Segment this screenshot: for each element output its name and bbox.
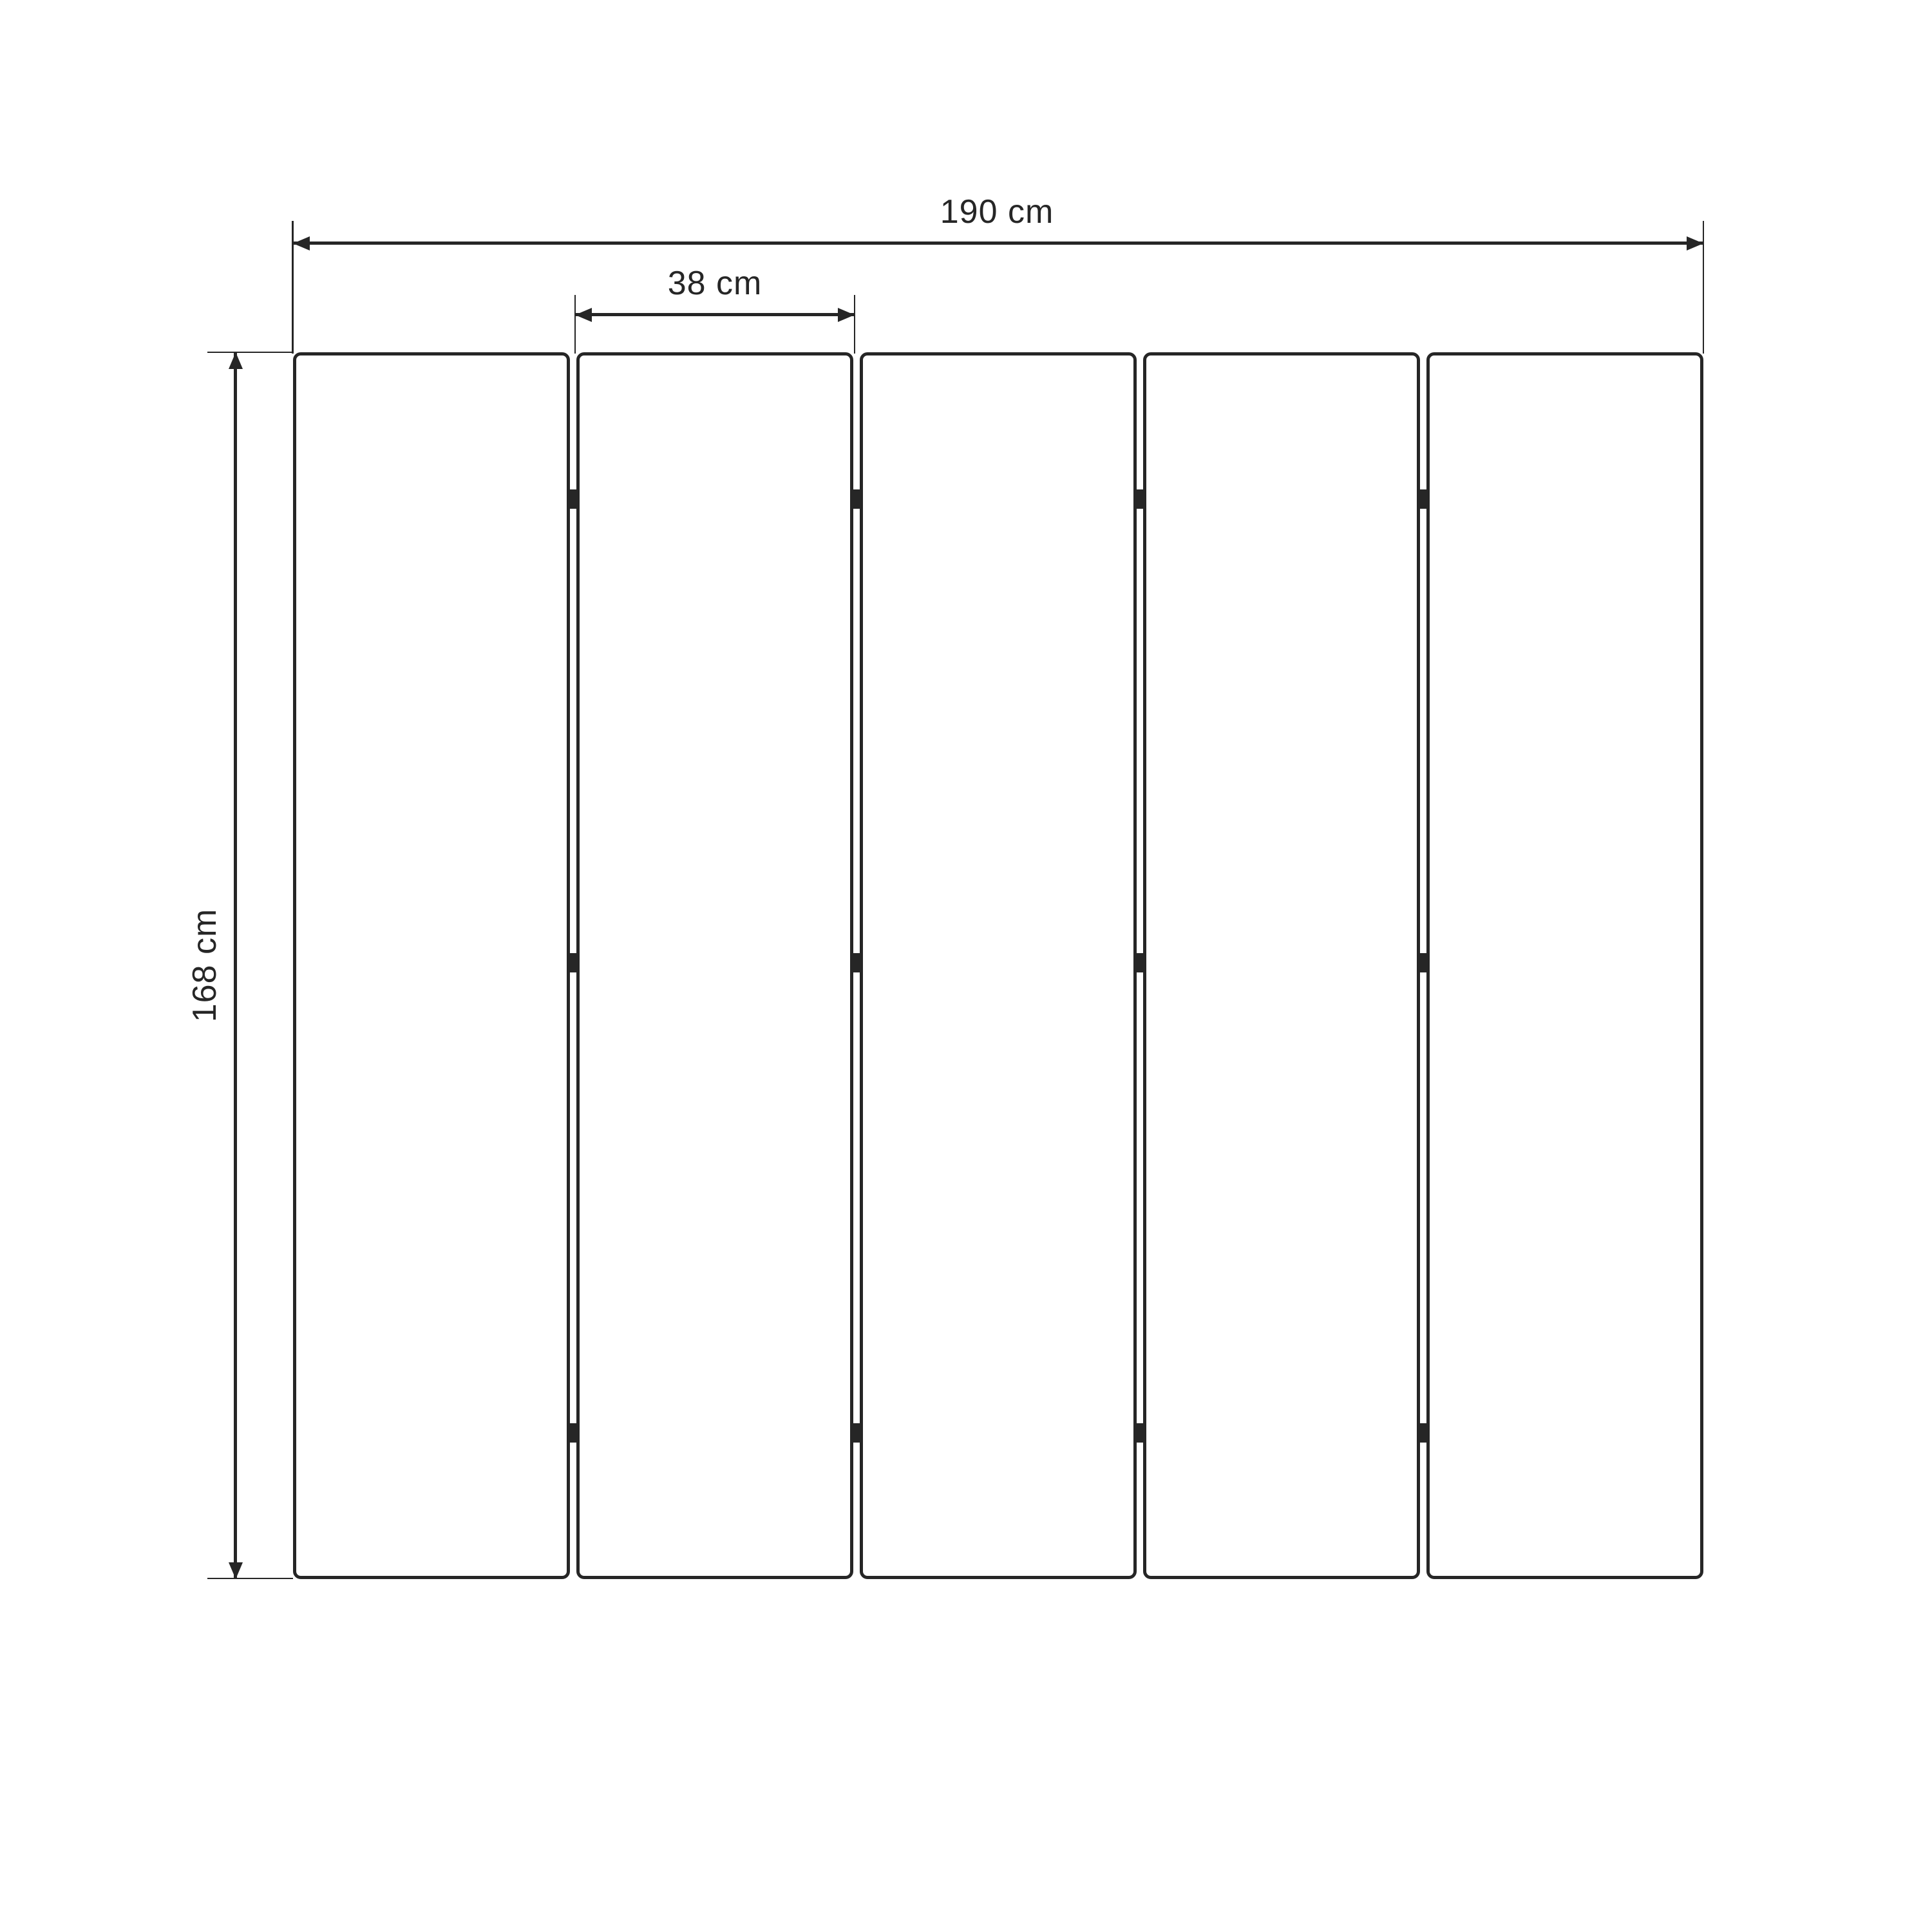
hinge-marker <box>853 953 861 972</box>
extension-line <box>854 295 856 354</box>
panel-4 <box>1143 352 1420 1579</box>
hinge-marker <box>1136 1423 1144 1443</box>
panel-width-label: 38 cm <box>668 267 762 300</box>
extension-line <box>207 352 293 354</box>
panel-2 <box>576 352 853 1579</box>
arrowhead-up-icon <box>229 352 243 369</box>
extension-line <box>574 295 576 354</box>
arrowhead-left-icon <box>293 236 310 251</box>
arrowhead-left-icon <box>575 308 592 322</box>
total-width-label: 190 cm <box>940 195 1054 229</box>
dimension-line <box>293 241 1703 245</box>
dimension-line <box>575 313 855 316</box>
panel-5 <box>1426 352 1703 1579</box>
panel-3 <box>860 352 1137 1579</box>
hinge-marker <box>1419 489 1428 509</box>
hinge-marker <box>569 489 578 509</box>
hinge-marker <box>853 1423 861 1443</box>
extension-line <box>207 1578 293 1580</box>
arrowhead-right-icon <box>1687 236 1703 251</box>
hinge-marker <box>1136 953 1144 972</box>
dimension-line <box>234 352 237 1579</box>
technical-drawing-canvas: 190 cm 38 cm 168 cm <box>0 0 1932 1932</box>
hinge-marker <box>1419 953 1428 972</box>
hinge-marker <box>569 953 578 972</box>
height-label: 168 cm <box>188 909 222 1023</box>
panel-1 <box>293 352 570 1579</box>
hinge-marker <box>1136 489 1144 509</box>
hinge-marker <box>569 1423 578 1443</box>
hinge-marker <box>1419 1423 1428 1443</box>
arrowhead-down-icon <box>229 1562 243 1579</box>
arrowhead-right-icon <box>838 308 855 322</box>
hinge-marker <box>853 489 861 509</box>
